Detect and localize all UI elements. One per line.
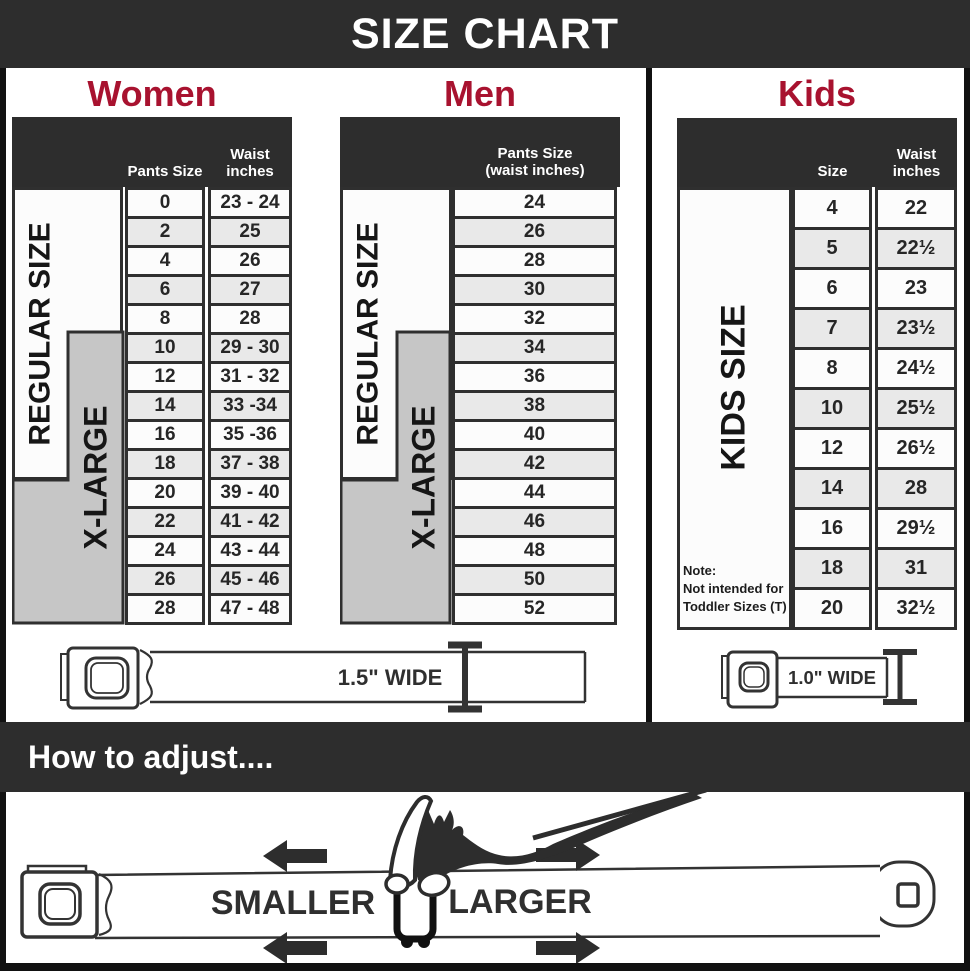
men-pants-size-cell: 48 — [452, 535, 617, 567]
women-table-row: 20 39 - 40 — [125, 477, 292, 509]
kids-waist-cell: 29½ — [875, 507, 957, 550]
kids-size-cell: 14 — [792, 467, 872, 510]
women-waist-cell: 41 - 42 — [208, 506, 292, 538]
women-col-pants-size: Pants Size — [125, 163, 205, 180]
women-waist-cell: 35 -36 — [208, 419, 292, 451]
adult-belt-width-label: 1.5" WIDE — [338, 665, 443, 690]
men-table-row: 32 — [452, 303, 617, 335]
women-waist-cell: 31 - 32 — [208, 361, 292, 393]
women-pants-size-cell: 16 — [125, 419, 205, 451]
women-waist-cell: 45 - 46 — [208, 564, 292, 596]
men-table-rows: 24 26 28 30 32 34 36 38 40 42 44 46 48 5… — [452, 187, 617, 625]
women-heading: Women — [12, 74, 292, 114]
men-table-row: 28 — [452, 245, 617, 277]
kids-heading: Kids — [677, 74, 957, 114]
kids-table-header: Size Waist inches — [677, 118, 957, 187]
men-pants-size-cell: 40 — [452, 419, 617, 451]
men-pants-size-cell: 34 — [452, 332, 617, 364]
women-pants-size-cell: 14 — [125, 390, 205, 422]
women-waist-cell: 25 — [208, 216, 292, 248]
men-table-row: 46 — [452, 506, 617, 538]
women-pants-size-cell: 28 — [125, 593, 205, 625]
women-table-row: 0 23 - 24 — [125, 187, 292, 219]
men-xlarge-label: X-LARGE — [397, 332, 450, 623]
kids-table-row: 5 22½ — [792, 227, 957, 270]
men-pants-size-cell: 50 — [452, 564, 617, 596]
women-pants-size-cell: 4 — [125, 245, 205, 277]
kids-col-size: Size — [792, 163, 873, 180]
women-table-rows: 0 23 - 24 2 25 4 26 6 27 8 28 10 29 - 30… — [125, 187, 292, 625]
women-pants-size-cell: 8 — [125, 303, 205, 335]
women-waist-cell: 47 - 48 — [208, 593, 292, 625]
men-table-row: 42 — [452, 448, 617, 480]
size-chart-infographic: SIZE CHART Women Pants Size Waist inches… — [0, 0, 970, 971]
kids-size-cell: 4 — [792, 187, 872, 230]
kids-table-row: 18 31 — [792, 547, 957, 590]
men-pants-size-cell: 36 — [452, 361, 617, 393]
women-table-row: 16 35 -36 — [125, 419, 292, 451]
kids-size-cell: 18 — [792, 547, 872, 590]
kids-size-cell: 7 — [792, 307, 872, 350]
men-pants-size-cell: 42 — [452, 448, 617, 480]
men-table-row: 52 — [452, 593, 617, 625]
kids-waist-cell: 22 — [875, 187, 957, 230]
women-waist-cell: 37 - 38 — [208, 448, 292, 480]
kids-table-row: 12 26½ — [792, 427, 957, 470]
how-to-adjust-band: How to adjust.... — [0, 722, 970, 792]
women-waist-cell: 39 - 40 — [208, 477, 292, 509]
kids-table-rows: 4 22 5 22½ 6 23 7 23½ 8 24½ 10 25½ 12 26… — [792, 187, 957, 630]
men-pants-size-cell: 26 — [452, 216, 617, 248]
adjustment-illustration: SMALLER LARGER — [0, 792, 970, 963]
women-waist-cell: 23 - 24 — [208, 187, 292, 219]
kids-waist-cell: 24½ — [875, 347, 957, 390]
smaller-label: SMALLER — [211, 884, 375, 922]
bottom-border — [0, 963, 970, 971]
men-pants-size-cell: 46 — [452, 506, 617, 538]
women-waist-cell: 33 -34 — [208, 390, 292, 422]
kids-waist-cell: 28 — [875, 467, 957, 510]
women-table-row: 8 28 — [125, 303, 292, 335]
men-pants-size-cell: 32 — [452, 303, 617, 335]
kids-waist-cell: 22½ — [875, 227, 957, 270]
men-regular-size-label: REGULAR SIZE — [340, 187, 398, 480]
kids-table-row: 16 29½ — [792, 507, 957, 550]
kids-note: Note: Not intended for Toddler Sizes (T) — [683, 562, 789, 616]
kids-size-cell: 6 — [792, 267, 872, 310]
kids-waist-cell: 25½ — [875, 387, 957, 430]
men-table-row: 26 — [452, 216, 617, 248]
men-pants-size-cell: 24 — [452, 187, 617, 219]
men-pants-size-cell: 38 — [452, 390, 617, 422]
kids-table-row: 20 32½ — [792, 587, 957, 630]
men-table-header: Pants Size (waist inches) — [340, 117, 620, 187]
women-pants-size-cell: 12 — [125, 361, 205, 393]
women-table-row: 6 27 — [125, 274, 292, 306]
kids-size-cell: 10 — [792, 387, 872, 430]
women-xlarge-label: X-LARGE — [68, 332, 123, 622]
men-table-row: 34 — [452, 332, 617, 364]
women-pants-size-cell: 2 — [125, 216, 205, 248]
women-table-row: 22 41 - 42 — [125, 506, 292, 538]
kids-waist-cell: 31 — [875, 547, 957, 590]
women-table-row: 2 25 — [125, 216, 292, 248]
men-pants-size-cell: 28 — [452, 245, 617, 277]
women-waist-cell: 43 - 44 — [208, 535, 292, 567]
how-to-adjust-title: How to adjust.... — [0, 739, 273, 776]
women-table-header: Pants Size Waist inches — [12, 117, 292, 187]
arrow-left-top-icon — [263, 840, 327, 872]
women-pants-size-cell: 22 — [125, 506, 205, 538]
kids-col-waist: Waist inches — [876, 146, 957, 180]
women-table-row: 18 37 - 38 — [125, 448, 292, 480]
kids-waist-cell: 23 — [875, 267, 957, 310]
women-waist-cell: 26 — [208, 245, 292, 277]
women-pants-size-cell: 20 — [125, 477, 205, 509]
women-waist-cell: 29 - 30 — [208, 332, 292, 364]
men-table-row: 24 — [452, 187, 617, 219]
men-col-pants-size: Pants Size (waist inches) — [452, 145, 618, 179]
kids-table-row: 14 28 — [792, 467, 957, 510]
women-table-row: 14 33 -34 — [125, 390, 292, 422]
women-pants-size-cell: 10 — [125, 332, 205, 364]
women-pants-size-cell: 0 — [125, 187, 205, 219]
men-table-row: 36 — [452, 361, 617, 393]
women-pants-size-cell: 26 — [125, 564, 205, 596]
men-heading: Men — [340, 74, 620, 114]
title-banner: SIZE CHART — [0, 0, 970, 68]
women-table-row: 10 29 - 30 — [125, 332, 292, 364]
kids-table-row: 6 23 — [792, 267, 957, 310]
women-waist-cell: 28 — [208, 303, 292, 335]
women-col-waist: Waist inches — [208, 146, 292, 180]
kids-size-cell: 12 — [792, 427, 872, 470]
adult-belt-illustration: 1.5" WIDE — [0, 632, 646, 722]
men-pants-size-cell: 52 — [452, 593, 617, 625]
men-table-row: 48 — [452, 535, 617, 567]
kids-waist-cell: 26½ — [875, 427, 957, 470]
kids-waist-cell: 32½ — [875, 587, 957, 630]
kids-table-row: 8 24½ — [792, 347, 957, 390]
women-pants-size-cell: 6 — [125, 274, 205, 306]
women-table-row: 24 43 - 44 — [125, 535, 292, 567]
kids-belt-illustration: 1.0" WIDE — [652, 632, 970, 722]
women-table-row: 26 45 - 46 — [125, 564, 292, 596]
kids-waist-cell: 23½ — [875, 307, 957, 350]
women-table-row: 4 26 — [125, 245, 292, 277]
men-table-row: 50 — [452, 564, 617, 596]
women-regular-size-label: REGULAR SIZE — [12, 187, 70, 480]
men-pants-size-cell: 44 — [452, 477, 617, 509]
larger-label: LARGER — [448, 883, 592, 921]
women-table-row: 28 47 - 48 — [125, 593, 292, 625]
kids-table-row: 4 22 — [792, 187, 957, 230]
women-waist-cell: 27 — [208, 274, 292, 306]
kids-size-cell: 5 — [792, 227, 872, 270]
kids-size-cell: 8 — [792, 347, 872, 390]
women-pants-size-cell: 24 — [125, 535, 205, 567]
kids-belt-width-label: 1.0" WIDE — [788, 667, 876, 688]
men-table-row: 38 — [452, 390, 617, 422]
men-table-row: 30 — [452, 274, 617, 306]
kids-table-row: 10 25½ — [792, 387, 957, 430]
kids-table-row: 7 23½ — [792, 307, 957, 350]
men-pants-size-cell: 30 — [452, 274, 617, 306]
page-title: SIZE CHART — [351, 10, 619, 59]
kids-size-label: KIDS SIZE — [677, 187, 792, 587]
men-table-row: 40 — [452, 419, 617, 451]
kids-size-cell: 16 — [792, 507, 872, 550]
kids-section-divider — [646, 68, 652, 722]
women-pants-size-cell: 18 — [125, 448, 205, 480]
men-table-row: 44 — [452, 477, 617, 509]
women-table-row: 12 31 - 32 — [125, 361, 292, 393]
kids-size-cell: 20 — [792, 587, 872, 630]
